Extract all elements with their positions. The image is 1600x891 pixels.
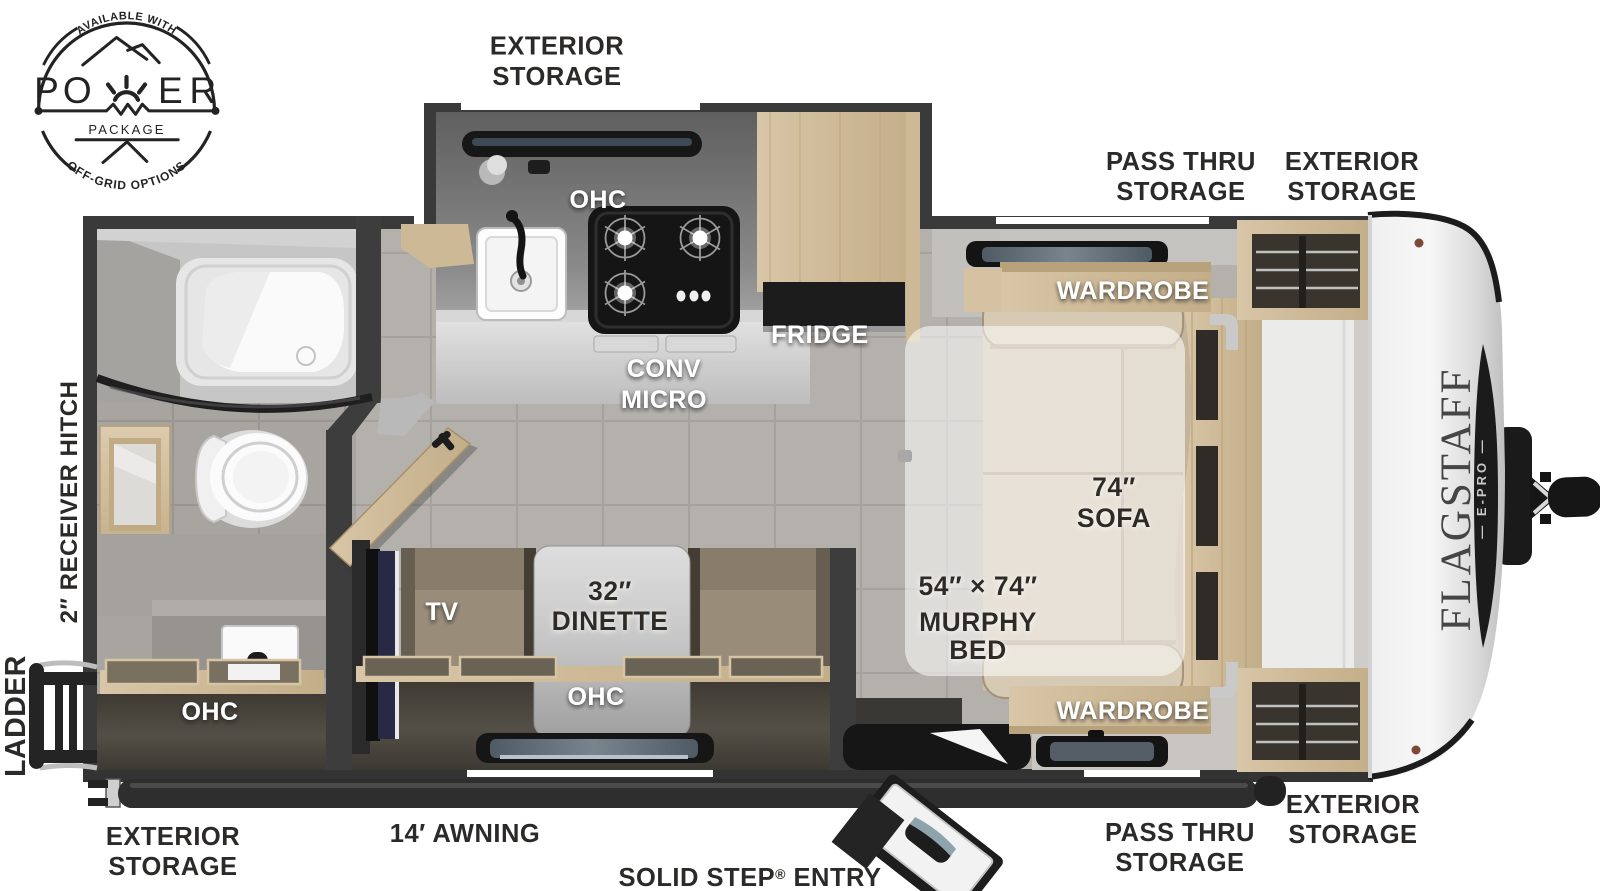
svg-text:CONV: CONV xyxy=(627,355,701,383)
svg-text:74″: 74″ xyxy=(1092,472,1136,502)
svg-text:OHC: OHC xyxy=(567,683,624,711)
svg-text:STORAGE: STORAGE xyxy=(1287,178,1416,206)
svg-text:LADDER: LADDER xyxy=(0,655,32,777)
svg-text:EXTERIOR: EXTERIOR xyxy=(490,33,624,61)
svg-text:STORAGE: STORAGE xyxy=(108,853,237,881)
svg-text:STORAGE: STORAGE xyxy=(1116,178,1245,206)
svg-text:54″ × 74″: 54″ × 74″ xyxy=(918,571,1037,601)
svg-text:SOFA: SOFA xyxy=(1077,503,1151,533)
svg-text:P: P xyxy=(34,70,59,111)
svg-text:BED: BED xyxy=(949,635,1006,665)
svg-text:E: E xyxy=(158,70,183,111)
svg-text:WARDROBE: WARDROBE xyxy=(1057,697,1210,725)
svg-text:DINETTE: DINETTE xyxy=(552,606,669,636)
svg-text:O: O xyxy=(63,70,92,111)
svg-text:PASS THRU: PASS THRU xyxy=(1105,819,1255,847)
svg-text:STORAGE: STORAGE xyxy=(1115,849,1244,877)
svg-text:MURPHY: MURPHY xyxy=(919,607,1037,637)
svg-text:MICRO: MICRO xyxy=(621,386,707,414)
svg-text:STORAGE: STORAGE xyxy=(492,63,621,91)
svg-text:EXTERIOR: EXTERIOR xyxy=(106,823,240,851)
svg-text:EXTERIOR: EXTERIOR xyxy=(1286,791,1420,819)
svg-text:PACKAGE: PACKAGE xyxy=(88,122,165,137)
svg-text:2″ RECEIVER HITCH: 2″ RECEIVER HITCH xyxy=(56,381,83,624)
svg-text:PASS THRU: PASS THRU xyxy=(1106,148,1256,176)
svg-text:STORAGE: STORAGE xyxy=(1288,821,1417,849)
svg-text:32″: 32″ xyxy=(588,576,632,606)
svg-text:WARDROBE: WARDROBE xyxy=(1057,277,1210,305)
svg-text:TV: TV xyxy=(426,598,459,626)
svg-text:OHC: OHC xyxy=(569,186,626,214)
svg-text:— E-PRO —: — E-PRO — xyxy=(1474,437,1489,538)
svg-text:R: R xyxy=(190,70,217,111)
svg-text:FLAGSTAFF: FLAGSTAFF xyxy=(1433,367,1480,632)
svg-text:14′ AWNING: 14′ AWNING xyxy=(390,820,540,848)
svg-text:FRIDGE: FRIDGE xyxy=(771,321,868,349)
svg-text:SOLID STEP® ENTRY: SOLID STEP® ENTRY xyxy=(619,864,882,891)
svg-text:EXTERIOR: EXTERIOR xyxy=(1285,148,1419,176)
svg-text:OHC: OHC xyxy=(181,698,238,726)
